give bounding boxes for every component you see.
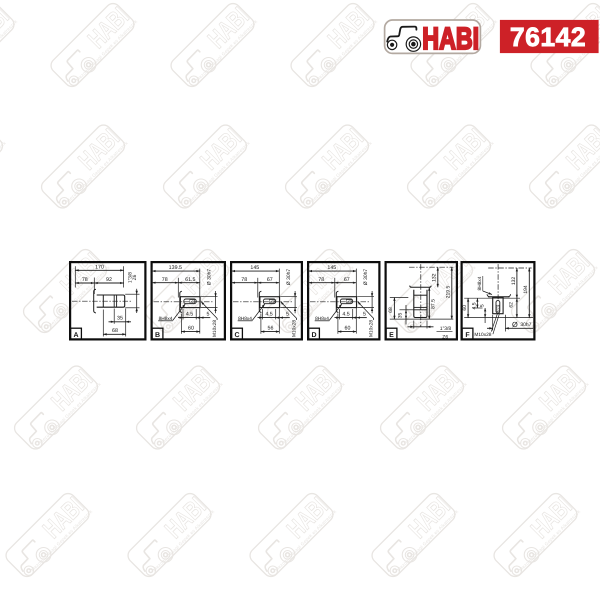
svg-text:76142: 76142 xyxy=(510,22,586,52)
svg-text:Ø 30h7: Ø 30h7 xyxy=(206,269,212,286)
svg-text:8H8x4: 8H8x4 xyxy=(315,316,329,322)
svg-text:B: B xyxy=(155,332,160,339)
svg-text:60: 60 xyxy=(188,326,194,332)
svg-text:78: 78 xyxy=(241,277,247,283)
svg-text:8H8x4: 8H8x4 xyxy=(159,316,173,322)
svg-text:60: 60 xyxy=(345,326,351,332)
svg-text:68: 68 xyxy=(388,307,394,313)
svg-text:87.5: 87.5 xyxy=(430,299,436,309)
svg-text:194: 194 xyxy=(523,285,529,294)
svg-text:60: 60 xyxy=(462,305,468,311)
svg-text:Ø 30h7: Ø 30h7 xyxy=(286,269,292,286)
svg-text:56: 56 xyxy=(268,326,274,332)
svg-text:30h7: 30h7 xyxy=(520,322,531,328)
svg-text:8H8x4: 8H8x4 xyxy=(477,276,483,290)
svg-text:78: 78 xyxy=(318,277,324,283)
svg-text:67: 67 xyxy=(344,277,350,283)
svg-text:M10x28: M10x28 xyxy=(291,320,297,337)
svg-text:4.5: 4.5 xyxy=(265,312,272,318)
svg-text:78: 78 xyxy=(162,277,168,283)
svg-text:132: 132 xyxy=(511,277,517,286)
svg-text:35: 35 xyxy=(398,313,404,319)
svg-text:139.5: 139.5 xyxy=(169,265,182,271)
svg-text:8H8x4: 8H8x4 xyxy=(238,316,252,322)
svg-text:78: 78 xyxy=(82,277,88,283)
svg-text:Ø 30h7: Ø 30h7 xyxy=(363,269,369,286)
svg-text:4.5: 4.5 xyxy=(342,312,349,318)
svg-text:M10x28: M10x28 xyxy=(474,332,491,338)
svg-text:68: 68 xyxy=(112,328,118,334)
svg-text:Ø: Ø xyxy=(512,320,518,329)
svg-text:132: 132 xyxy=(432,273,438,282)
svg-text:4.5: 4.5 xyxy=(186,312,193,318)
svg-text:M10x28: M10x28 xyxy=(212,320,218,337)
svg-text:C: C xyxy=(234,332,239,339)
svg-text:219.5: 219.5 xyxy=(446,286,452,299)
svg-text:Z6: Z6 xyxy=(442,334,448,340)
svg-text:E: E xyxy=(389,332,394,339)
svg-text:145: 145 xyxy=(250,265,259,271)
svg-text:4.5: 4.5 xyxy=(472,302,478,309)
svg-text:92: 92 xyxy=(106,277,112,283)
svg-text:HABI: HABI xyxy=(422,21,479,56)
svg-text:145: 145 xyxy=(327,265,336,271)
svg-text:35: 35 xyxy=(117,316,123,322)
svg-text:5: 5 xyxy=(480,304,486,307)
svg-text:62: 62 xyxy=(509,302,515,308)
svg-text:170: 170 xyxy=(95,265,104,271)
svg-text:F: F xyxy=(465,332,470,339)
svg-text:Z6: Z6 xyxy=(132,274,138,280)
svg-text:A: A xyxy=(73,332,78,339)
svg-text:5: 5 xyxy=(286,312,289,318)
svg-text:67: 67 xyxy=(267,277,273,283)
svg-text:61.5: 61.5 xyxy=(185,277,195,283)
svg-text:M10x28: M10x28 xyxy=(368,320,374,337)
svg-text:5: 5 xyxy=(363,312,366,318)
svg-text:5: 5 xyxy=(207,312,210,318)
svg-text:D: D xyxy=(311,332,316,339)
